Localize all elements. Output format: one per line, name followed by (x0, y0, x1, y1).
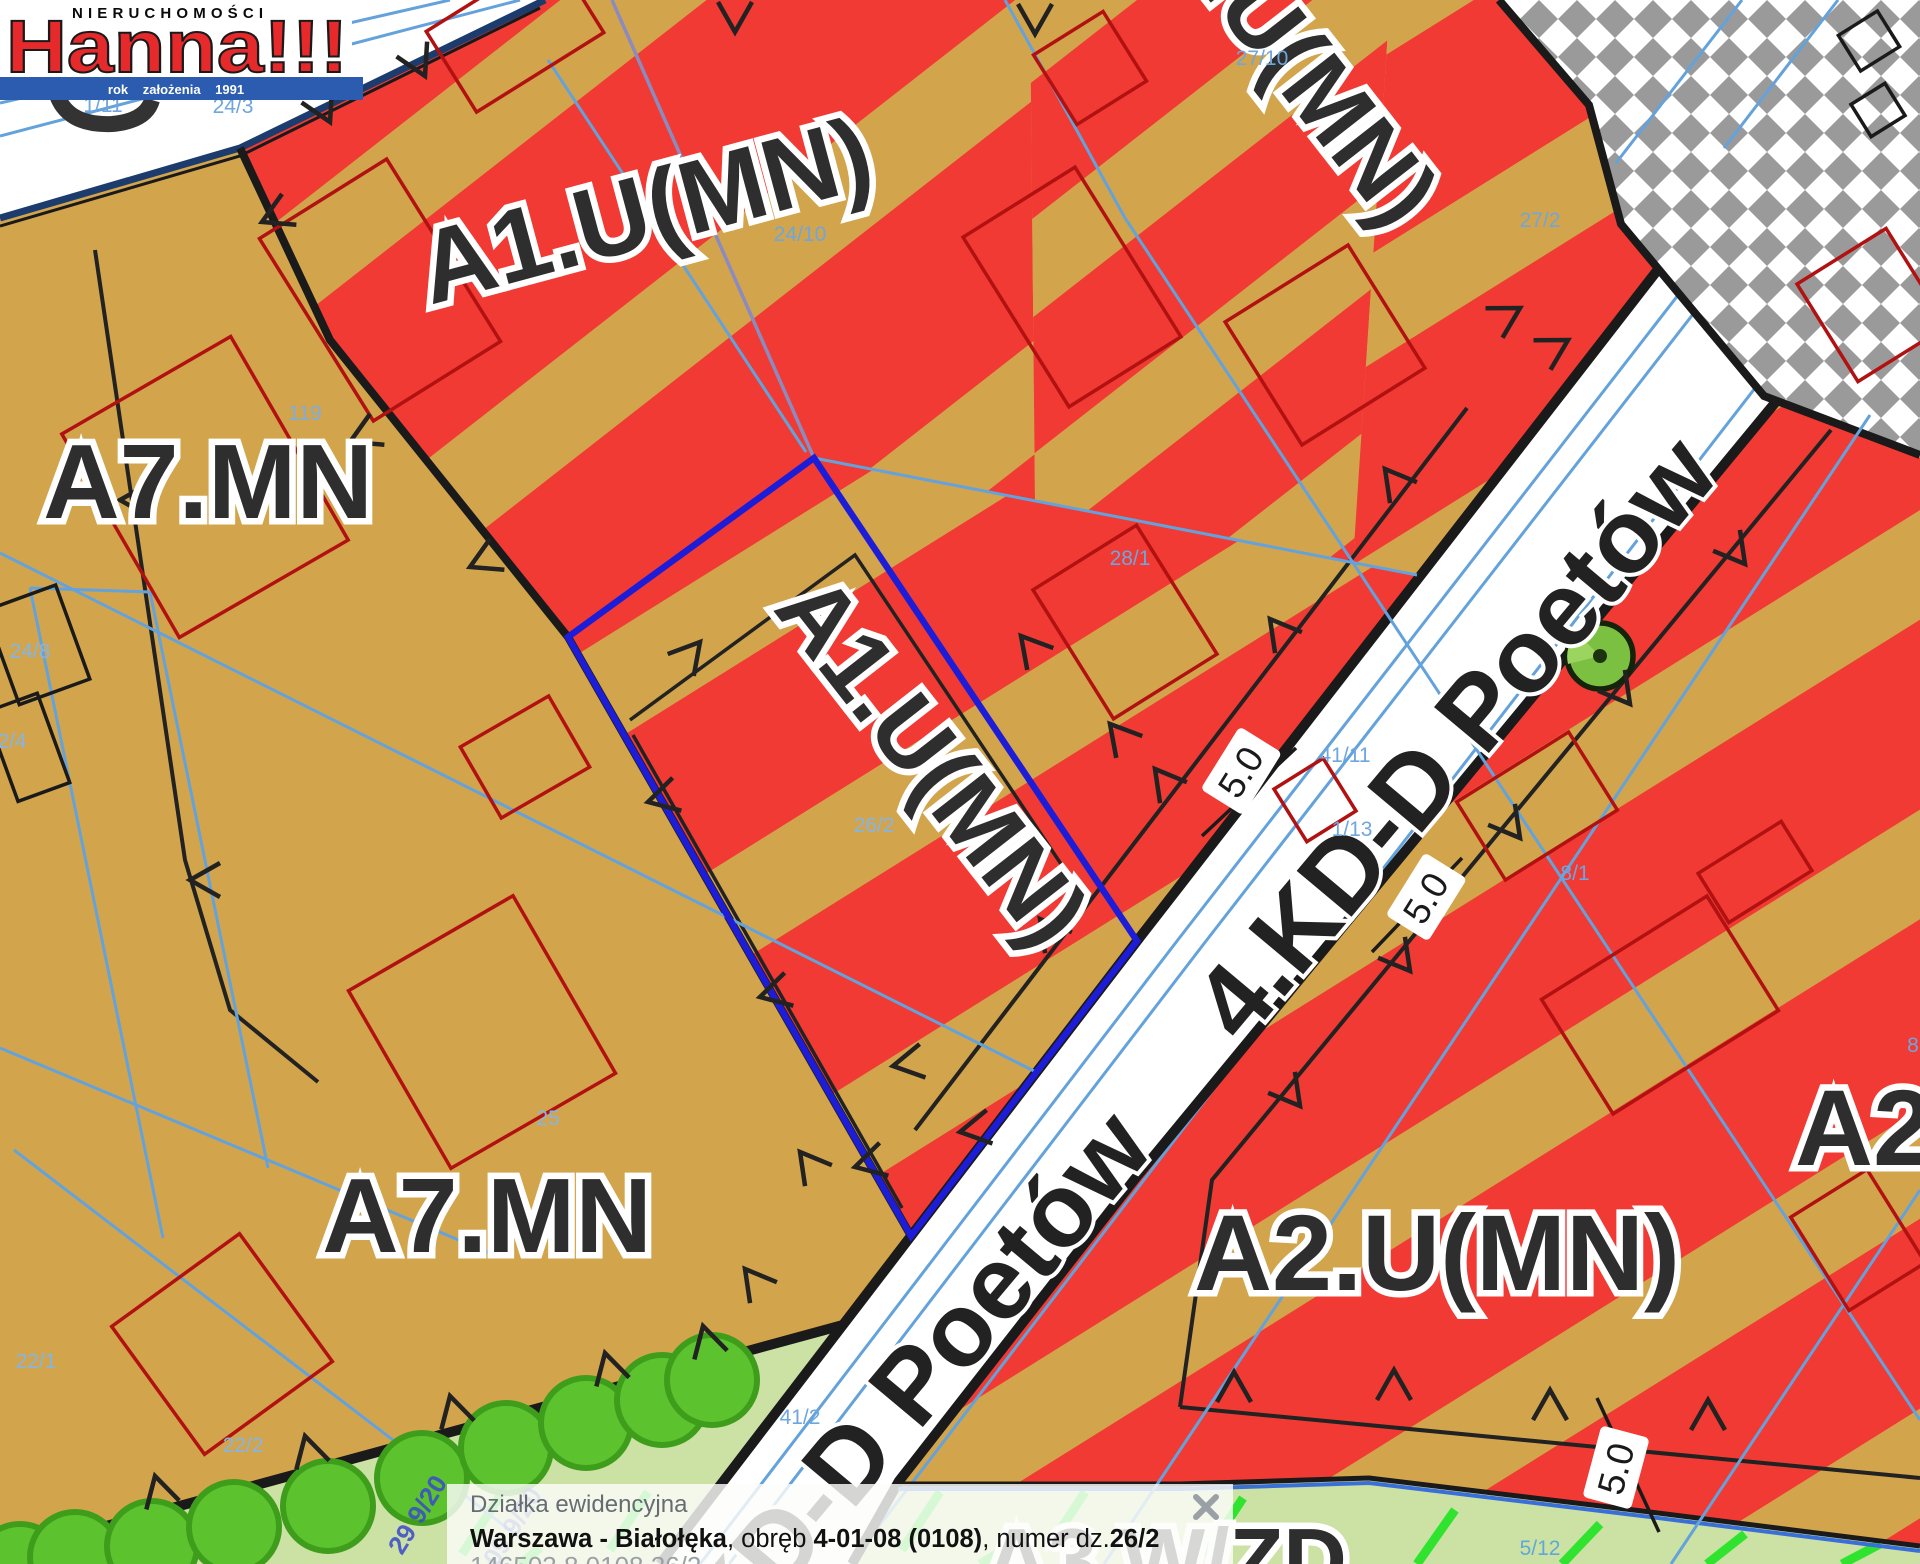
svg-text:27/2: 27/2 (1520, 209, 1561, 232)
svg-text:8: 8 (1907, 1034, 1919, 1057)
svg-text:2/4: 2/4 (0, 730, 27, 753)
svg-text:41/11: 41/11 (1320, 744, 1371, 767)
svg-text:A7.MN: A7.MN (43, 423, 373, 541)
svg-text:119: 119 (288, 402, 321, 425)
svg-text:25: 25 (536, 1107, 559, 1130)
svg-text:24/10: 24/10 (774, 223, 827, 246)
svg-text:A7.MN: A7.MN (322, 1157, 652, 1275)
svg-text:1/13: 1/13 (1332, 818, 1373, 841)
svg-text:rok założenia 1991: rok założenia 1991 (108, 82, 244, 97)
svg-text:5/12: 5/12 (1520, 1537, 1561, 1560)
svg-text:A2.U(MN): A2.U(MN) (1194, 1192, 1680, 1313)
svg-text:Hanna!!!: Hanna!!! (6, 5, 348, 88)
svg-text:41/2: 41/2 (780, 1406, 821, 1429)
svg-text:146503 8.0108.26/2: 146503 8.0108.26/2 (470, 1551, 701, 1564)
svg-text:Działka ewidencyjna: Działka ewidencyjna (470, 1491, 688, 1518)
svg-text:27/10: 27/10 (1236, 47, 1289, 70)
svg-text:A2.U(MN): A2.U(MN) (1795, 1067, 1920, 1188)
svg-text:26/2: 26/2 (854, 814, 895, 837)
svg-text:Warszawa - Białołęka, obręb 4-: Warszawa - Białołęka, obręb 4-01-08 (010… (470, 1525, 1159, 1553)
svg-text:22/1: 22/1 (16, 1350, 57, 1373)
svg-text:22/2: 22/2 (223, 1434, 264, 1457)
svg-text:8/1: 8/1 (1560, 862, 1589, 885)
svg-text:28/1: 28/1 (1110, 547, 1151, 570)
svg-text:24/8: 24/8 (10, 640, 51, 663)
